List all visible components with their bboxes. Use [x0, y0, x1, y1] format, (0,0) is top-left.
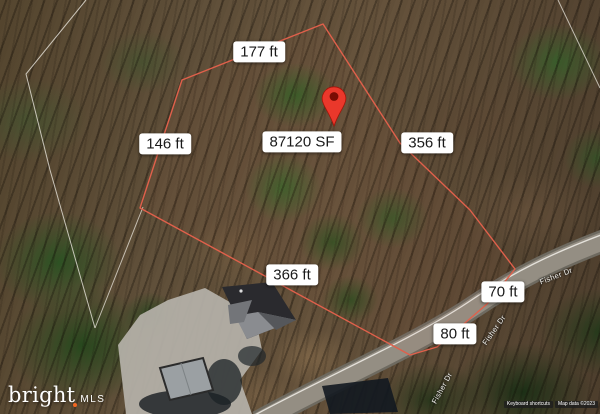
lot-area-label: 87120 SF	[262, 131, 341, 152]
dimension-label-right: 356 ft	[401, 132, 453, 153]
dimension-label-top: 177 ft	[233, 41, 285, 62]
parcel-line	[26, 0, 95, 328]
dimension-label-left: 146 ft	[139, 133, 191, 154]
brightmls-mls-text: MLS	[80, 394, 105, 405]
brightmls-watermark: bright MLS	[8, 383, 105, 407]
parcel-line	[95, 207, 143, 328]
roof-vent	[239, 289, 242, 292]
brightmls-spark-icon	[73, 403, 77, 407]
parcel-line	[558, 0, 600, 88]
map-attribution: Keyboard shortcuts Map data ©2023	[504, 401, 598, 409]
dimension-label-bottom: 366 ft	[266, 264, 318, 285]
dimension-label-frontage-80: 80 ft	[433, 323, 476, 344]
map-overlay	[0, 0, 600, 414]
dimension-label-frontage-70: 70 ft	[481, 281, 524, 302]
map-data-attribution: Map data ©2023	[555, 401, 598, 409]
keyboard-shortcuts-button[interactable]: Keyboard shortcuts	[504, 401, 553, 409]
tree-shadow	[238, 346, 266, 366]
brightmls-wordmark: bright	[8, 383, 75, 407]
map-canvas[interactable]: Fisher Dr Fisher Dr Fisher Dr 177 ft 146…	[0, 0, 600, 414]
